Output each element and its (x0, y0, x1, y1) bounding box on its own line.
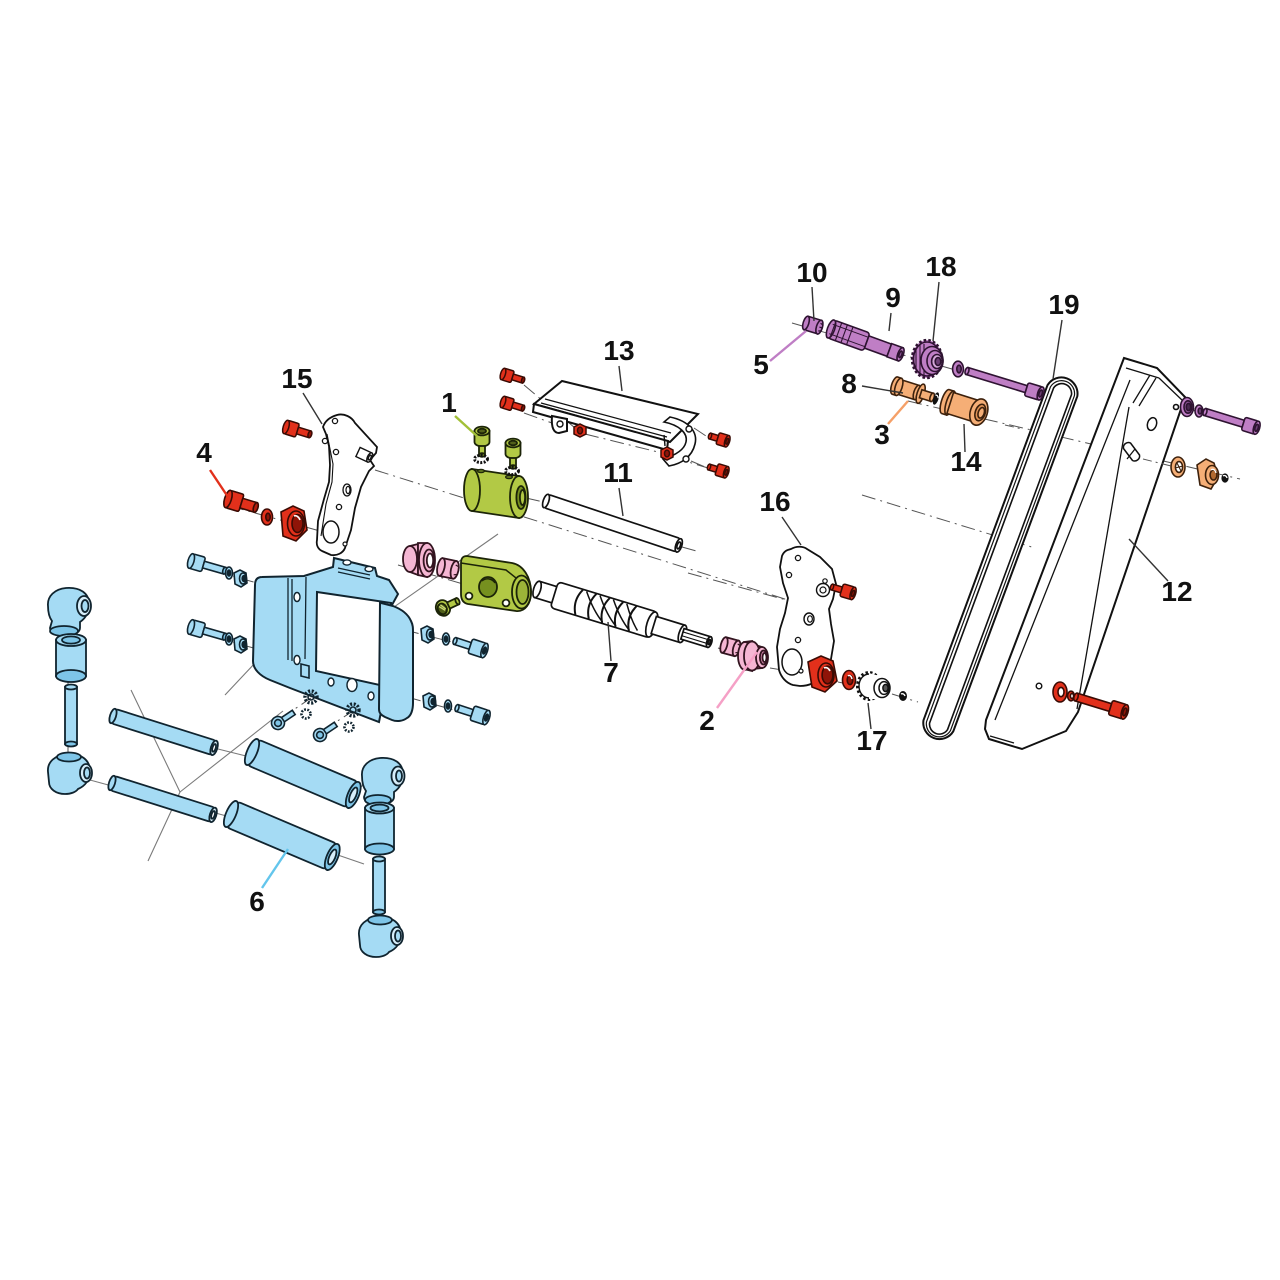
svg-text:10: 10 (796, 257, 827, 288)
svg-text:2: 2 (699, 705, 715, 736)
svg-text:13: 13 (603, 335, 634, 366)
svg-text:5: 5 (753, 349, 769, 380)
svg-text:14: 14 (950, 446, 982, 477)
svg-text:8: 8 (841, 368, 857, 399)
svg-text:19: 19 (1048, 289, 1079, 320)
svg-text:15: 15 (281, 363, 312, 394)
svg-text:11: 11 (603, 457, 633, 488)
svg-text:3: 3 (874, 419, 890, 450)
svg-text:17: 17 (856, 725, 887, 756)
svg-text:18: 18 (925, 251, 956, 282)
svg-text:12: 12 (1161, 576, 1192, 607)
svg-text:7: 7 (603, 657, 619, 688)
svg-text:16: 16 (759, 486, 790, 517)
svg-text:9: 9 (885, 282, 901, 313)
svg-text:6: 6 (249, 886, 265, 917)
svg-text:4: 4 (196, 437, 212, 468)
svg-text:1: 1 (441, 387, 457, 418)
